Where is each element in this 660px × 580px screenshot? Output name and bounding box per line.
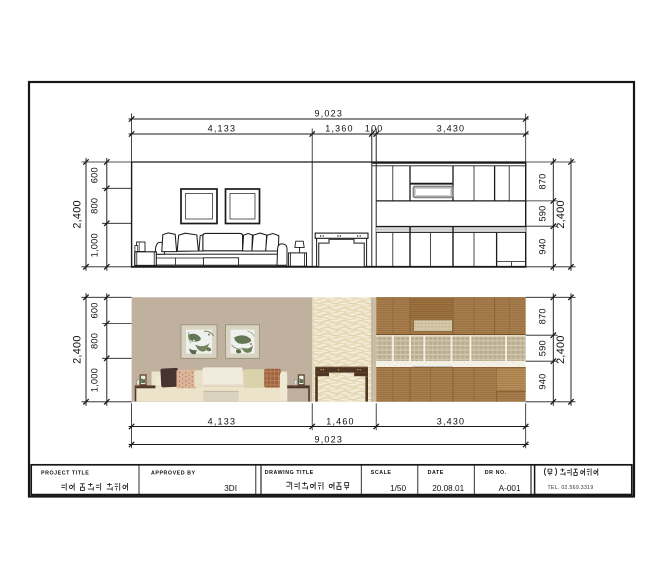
svg-text:1,000: 1,000 [90,233,100,257]
svg-text:1/50: 1/50 [390,484,406,493]
svg-text:870: 870 [537,308,547,324]
svg-text:800: 800 [90,333,100,349]
svg-text:4,133: 4,133 [208,124,237,134]
svg-text:9,023: 9,023 [315,434,344,444]
svg-text:940: 940 [537,374,547,390]
svg-text:2,400: 2,400 [555,335,567,364]
svg-text:3,430: 3,430 [437,416,466,426]
svg-text:TEL. 02.569.3319: TEL. 02.569.3319 [547,485,593,491]
svg-text:800: 800 [90,198,100,214]
svg-text:2,400: 2,400 [555,200,567,229]
svg-text:600: 600 [90,302,100,318]
svg-text:DATE: DATE [428,470,444,476]
svg-text:100: 100 [365,124,384,134]
svg-text:590: 590 [537,340,547,356]
svg-text:3DI: 3DI [224,484,237,493]
svg-text:1,460: 1,460 [326,416,355,426]
svg-text:600: 600 [90,167,100,183]
svg-text:SCALE: SCALE [371,470,392,476]
svg-text:2,400: 2,400 [72,200,84,229]
svg-text:2,400: 2,400 [72,335,84,364]
svg-text:1,000: 1,000 [90,368,100,392]
svg-text:APPROVED BY: APPROVED BY [151,471,196,477]
svg-text:DR NO.: DR NO. [485,470,507,476]
svg-text:1,360: 1,360 [325,124,354,134]
svg-text:940: 940 [537,239,547,255]
svg-text:PROJECT TITLE: PROJECT TITLE [41,471,89,477]
svg-text:590: 590 [537,206,547,222]
svg-text:870: 870 [537,173,547,189]
svg-text:20.08.01: 20.08.01 [432,484,464,493]
svg-text:3,430: 3,430 [437,124,466,134]
svg-text:A-001: A-001 [499,484,521,493]
svg-text:9,023: 9,023 [315,108,344,118]
svg-text:4,133: 4,133 [208,416,237,426]
svg-text:DRAWING TITLE: DRAWING TITLE [265,470,314,476]
